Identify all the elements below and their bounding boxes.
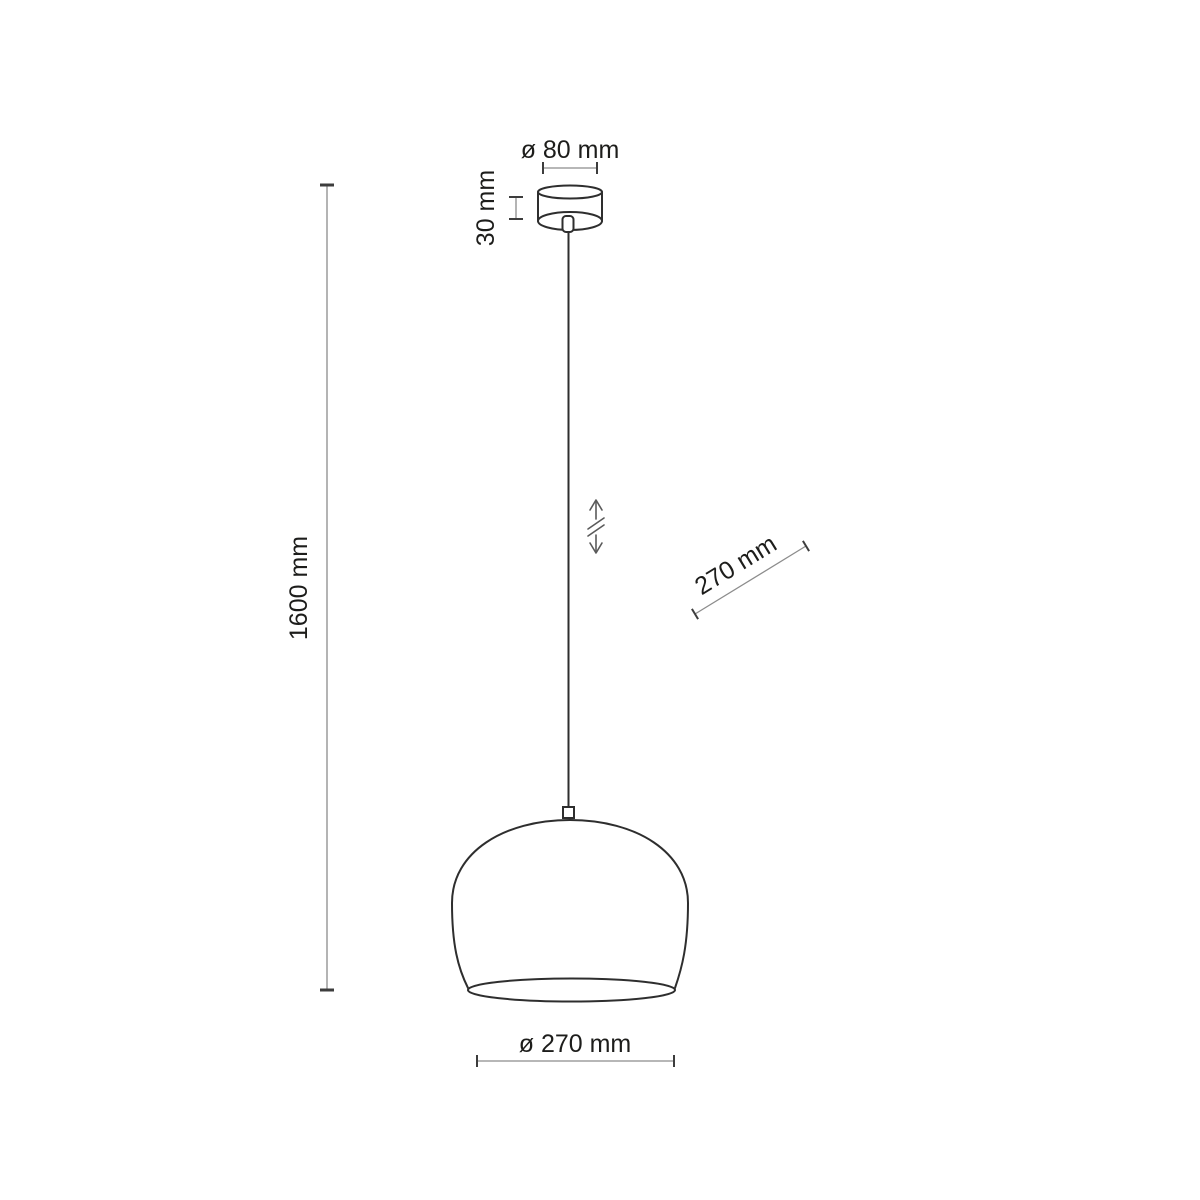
shade-bottom-opening bbox=[468, 979, 675, 1002]
canopy-diameter-dimension: ø 80 mm bbox=[521, 136, 620, 174]
total-height-dimension: 1600 mm bbox=[285, 185, 334, 990]
shade-depth-label: 270 mm bbox=[690, 530, 782, 601]
canopy-height-dimension: 30 mm bbox=[472, 170, 523, 246]
canopy-diameter-label: ø 80 mm bbox=[521, 136, 620, 164]
pendant-lamp-diagram: 1600 mm ø 80 mm 30 mm bbox=[0, 0, 1200, 1200]
canopy-height-label: 30 mm bbox=[472, 170, 500, 246]
shade-outline bbox=[452, 820, 688, 988]
ceiling-canopy bbox=[538, 186, 602, 233]
height-adjust-icon bbox=[588, 500, 604, 553]
canopy-cable-grip bbox=[563, 216, 574, 232]
shade-cable-connector bbox=[563, 807, 574, 818]
shade-diameter-label: ø 270 mm bbox=[519, 1030, 632, 1058]
canopy-top-rim bbox=[538, 186, 602, 199]
lamp-shade bbox=[452, 807, 688, 1002]
total-height-label: 1600 mm bbox=[285, 536, 313, 640]
shade-diameter-dimension: ø 270 mm bbox=[477, 1030, 674, 1067]
shade-depth-start-tick bbox=[692, 609, 698, 619]
shade-depth-dimension: 270 mm bbox=[690, 530, 809, 619]
shade-depth-end-tick bbox=[803, 541, 809, 551]
dimension-drawing: 1600 mm ø 80 mm 30 mm bbox=[0, 0, 1200, 1200]
